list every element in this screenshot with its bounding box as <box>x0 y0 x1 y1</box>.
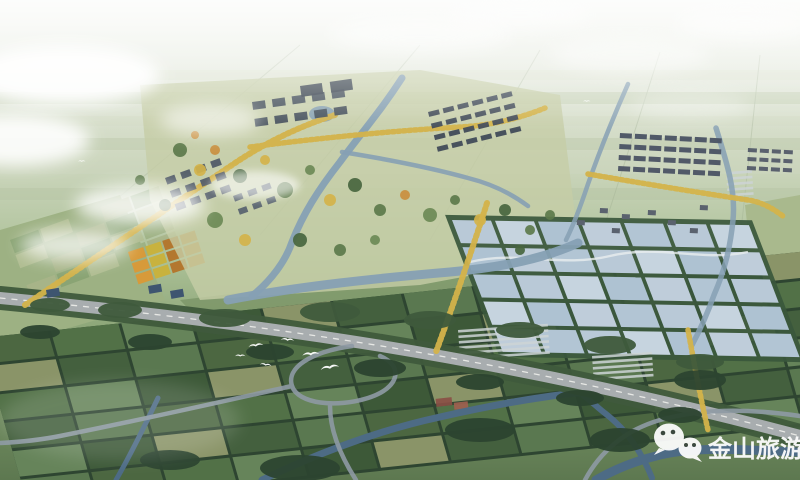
building <box>649 146 661 152</box>
building <box>760 149 769 153</box>
village-house <box>690 228 698 233</box>
tree <box>348 178 362 192</box>
building <box>619 155 631 161</box>
village-house <box>668 220 676 225</box>
building <box>747 166 756 170</box>
building <box>649 157 661 163</box>
building <box>634 156 646 162</box>
building <box>618 166 630 172</box>
tree <box>260 155 270 165</box>
building <box>748 148 757 152</box>
village-house <box>622 214 630 219</box>
building <box>771 158 780 162</box>
tree <box>450 195 460 205</box>
building <box>708 171 720 177</box>
building <box>648 168 660 174</box>
tree <box>239 234 251 246</box>
building <box>665 135 677 141</box>
tree <box>515 245 525 255</box>
building <box>633 167 645 173</box>
building <box>650 135 662 141</box>
tree <box>423 208 437 222</box>
village-house <box>700 205 708 210</box>
building <box>694 148 706 154</box>
village-house <box>600 208 608 213</box>
building <box>620 133 632 139</box>
building <box>664 146 676 152</box>
building <box>784 150 793 154</box>
tree <box>305 165 315 175</box>
building <box>679 158 691 164</box>
building <box>680 136 692 142</box>
tree <box>324 194 336 206</box>
tree <box>370 235 380 245</box>
tree <box>135 175 145 185</box>
building <box>693 170 705 176</box>
building <box>771 167 780 171</box>
tree <box>173 143 187 157</box>
building <box>695 137 707 143</box>
tree <box>210 145 220 155</box>
tree <box>194 164 206 176</box>
watermark-text: 金山旅游 <box>707 435 800 463</box>
building <box>759 167 768 171</box>
tree <box>293 233 307 247</box>
building <box>708 160 720 166</box>
building <box>759 158 768 162</box>
building <box>783 168 792 172</box>
building <box>664 157 676 163</box>
tree <box>400 190 410 200</box>
tree <box>474 214 486 226</box>
tree <box>525 225 535 235</box>
building <box>747 157 756 161</box>
tree <box>334 244 346 256</box>
village-house <box>612 228 620 233</box>
tree <box>207 212 223 228</box>
village-house <box>577 220 585 225</box>
building <box>709 149 721 155</box>
building <box>772 149 781 153</box>
tree <box>499 204 511 216</box>
building <box>693 159 705 165</box>
scene-canvas: 金山旅游 <box>0 0 800 480</box>
building <box>619 144 631 150</box>
aerial-masterplan-render: 金山旅游 <box>0 0 800 480</box>
tree <box>374 204 386 216</box>
tree <box>545 210 555 220</box>
building <box>635 134 647 140</box>
building <box>710 138 722 144</box>
building <box>783 159 792 163</box>
building <box>663 168 675 174</box>
building <box>634 145 646 151</box>
building <box>678 169 690 175</box>
village-house <box>648 210 656 215</box>
building <box>679 147 691 153</box>
